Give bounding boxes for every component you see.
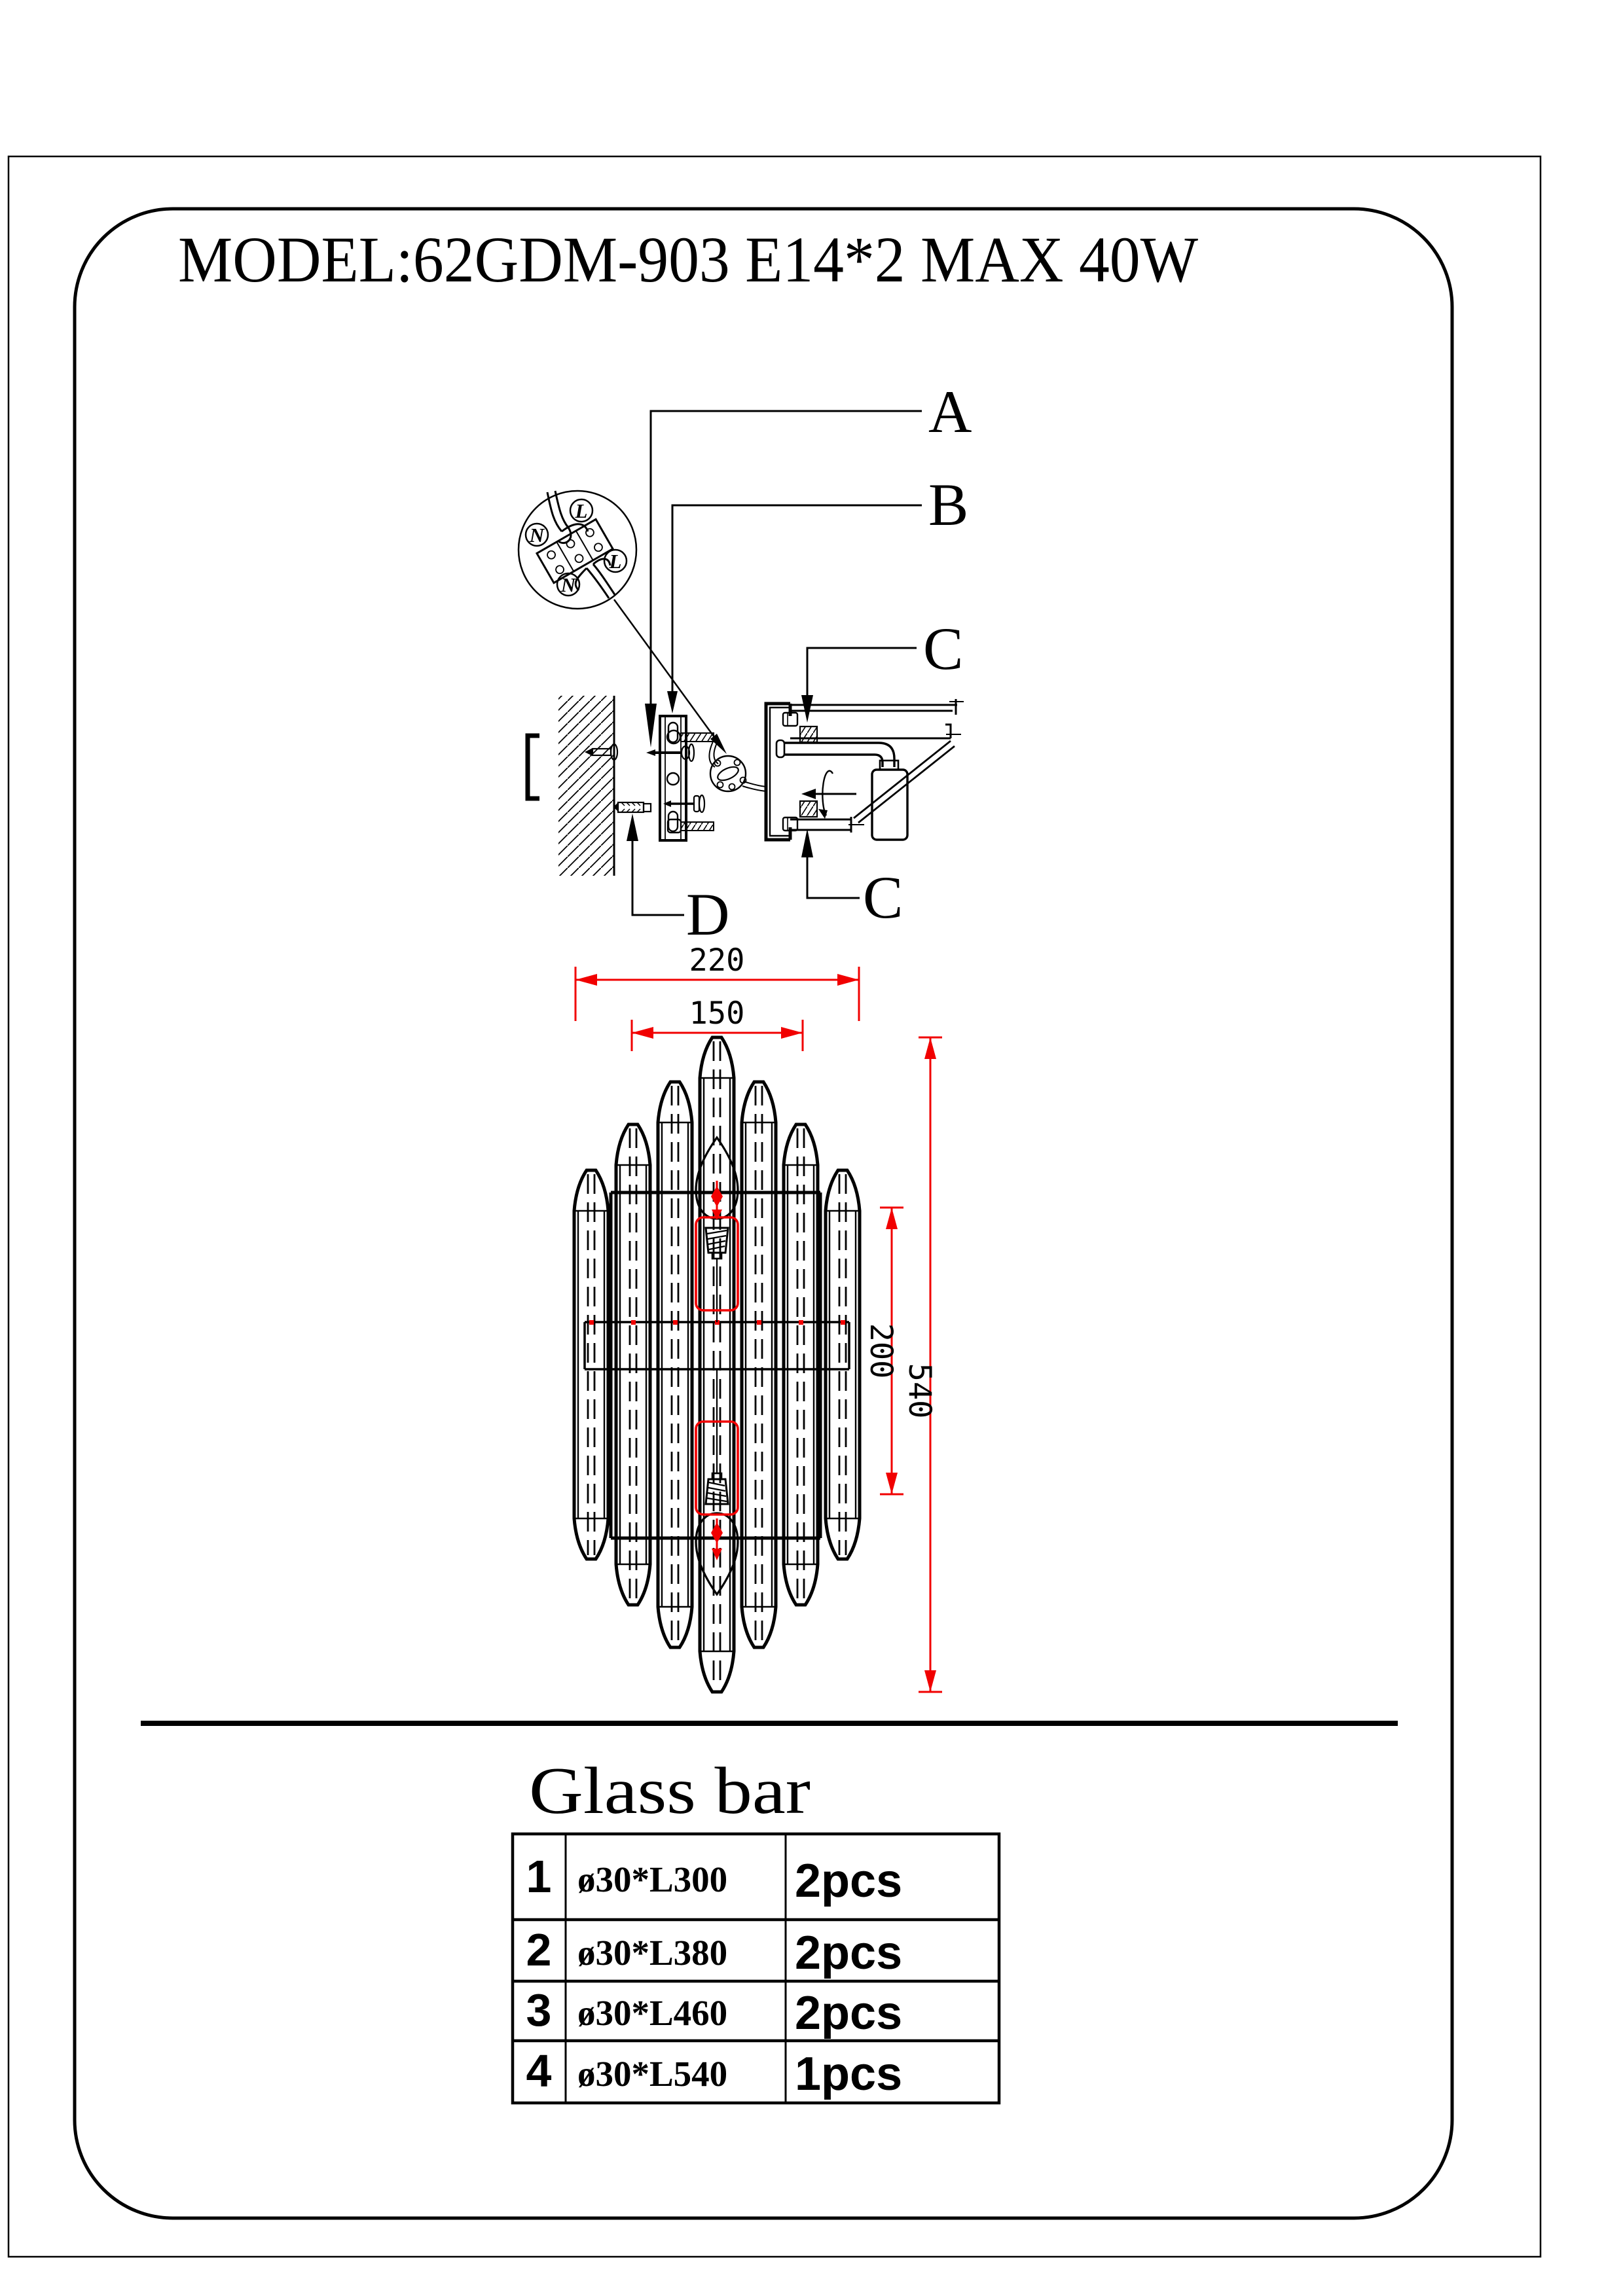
glass-bar [658, 1082, 692, 1647]
row-spec: ø30*L380 [577, 1933, 727, 1973]
glass-bar [826, 1170, 860, 1559]
glass-bar [742, 1082, 776, 1647]
mounting-plate [646, 716, 714, 840]
table-row: 1 ø30*L300 2pcs [526, 1851, 903, 1907]
callout-label-c-bottom: C [863, 864, 903, 931]
dim-text-220: 220 [689, 942, 745, 978]
instruction-sheet: MODEL:62GDM-903 E14*2 MAX 40W A B C C D [0, 0, 1623, 2296]
dim-text-540: 540 [902, 1363, 938, 1419]
junction-connector [709, 740, 766, 791]
row-qty: 2pcs [795, 1987, 902, 2039]
row-qty: 1pcs [795, 2048, 902, 2100]
glass-bar [616, 1124, 650, 1605]
parts-table-title: Glass bar [529, 1754, 811, 1828]
backplate [611, 1193, 820, 1538]
callout-arrowheads [627, 691, 813, 857]
row-qty: 2pcs [795, 1855, 902, 1907]
row-spec: ø30*L300 [577, 1859, 727, 1899]
wall-anchor-bottom [613, 802, 651, 812]
dimension-overall-height: 540 [902, 1037, 942, 1692]
dim-text-200: 200 [863, 1323, 899, 1379]
dimension-lamp-spacing: 200 [863, 1208, 903, 1494]
row-spec: ø30*L460 [577, 1993, 727, 2033]
callout-label-a: A [928, 378, 972, 445]
callout-label-c-top: C [923, 615, 963, 682]
lower-lamp [696, 1369, 738, 1594]
table-row: 3 ø30*L460 2pcs [526, 1984, 903, 2039]
callout-label-d: D [686, 881, 729, 948]
table-row: 2 ø30*L380 2pcs [526, 1924, 903, 1979]
wiring-detail-circle: N L L N [519, 491, 636, 609]
central-mount-bar [585, 1320, 849, 1369]
table-row: 4 ø30*L540 1pcs [526, 2045, 903, 2100]
row-spec: ø30*L540 [577, 2054, 727, 2094]
wire-label-l-right: L [609, 550, 622, 573]
row-qty: 2pcs [795, 1927, 902, 1979]
parts-table: 1 ø30*L300 2pcs 2 ø30*L380 2pcs 3 ø30*L4… [513, 1834, 999, 2103]
callout-label-b: B [928, 471, 968, 538]
installation-diagram: A B C C D [519, 378, 972, 948]
row-no: 2 [526, 1924, 552, 1975]
wall-bracket-mark [528, 736, 539, 798]
glass-bar [574, 1170, 608, 1559]
dimension-inner-width: 150 [632, 996, 803, 1051]
upper-lamp [696, 1138, 738, 1322]
row-no: 4 [526, 2045, 552, 2096]
row-no: 3 [526, 1984, 552, 2036]
wire-label-n-top: N [529, 524, 545, 547]
model-title: MODEL:62GDM-903 E14*2 MAX 40W [178, 223, 1199, 296]
glass-bar [784, 1124, 818, 1605]
wire-label-l-top: L [575, 499, 588, 522]
fixture-front-view: 220 150 200 540 [574, 942, 942, 1692]
wall-section [528, 696, 614, 876]
dim-text-150: 150 [689, 996, 745, 1031]
canopy-side-view [766, 699, 964, 840]
row-no: 1 [526, 1851, 552, 1902]
wire-label-n-bottom: N [560, 573, 577, 596]
